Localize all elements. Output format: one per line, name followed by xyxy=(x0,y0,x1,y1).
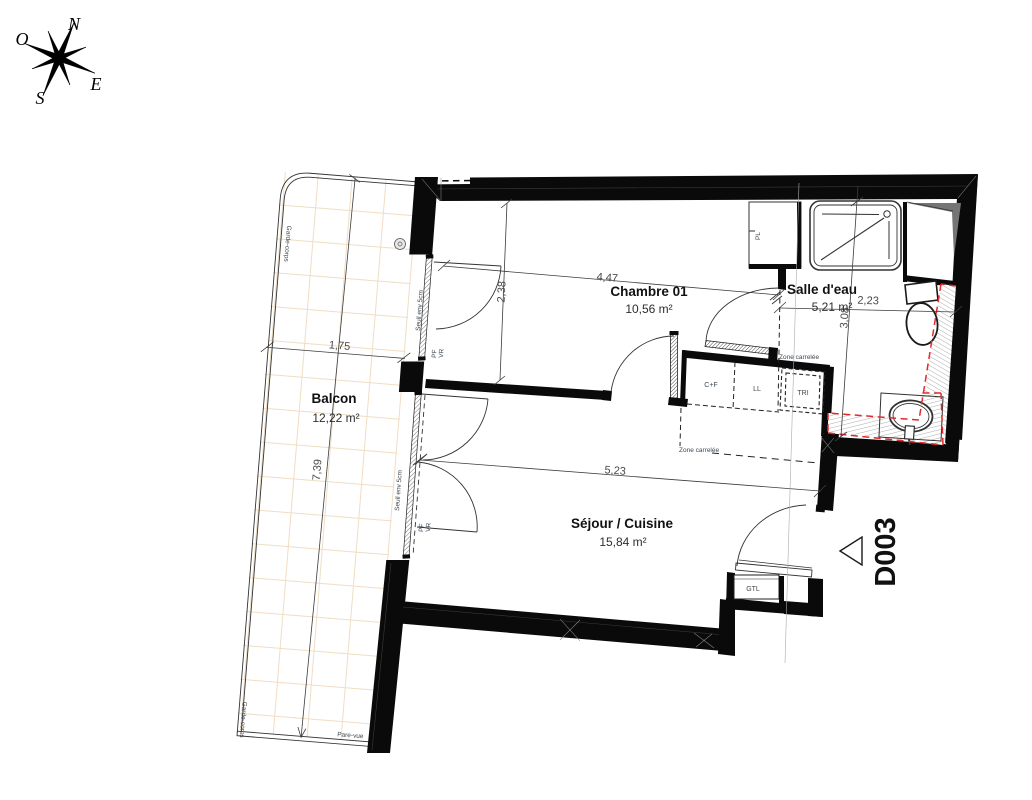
svg-text:Salle d'eau: Salle d'eau xyxy=(787,282,857,297)
svg-text:E: E xyxy=(90,74,102,94)
svg-text:15,84 m²: 15,84 m² xyxy=(599,535,646,549)
svg-text:2,38: 2,38 xyxy=(495,281,508,303)
svg-text:TRI: TRI xyxy=(797,390,808,397)
svg-text:2,23: 2,23 xyxy=(857,295,879,308)
svg-text:Zone carrelée: Zone carrelée xyxy=(779,354,819,361)
svg-text:PL: PL xyxy=(755,232,762,240)
svg-text:S: S xyxy=(36,88,45,108)
svg-text:C+F: C+F xyxy=(704,382,717,389)
svg-text:O: O xyxy=(16,29,29,49)
svg-text:Séjour / Cuisine: Séjour / Cuisine xyxy=(571,516,674,531)
svg-text:LL: LL xyxy=(753,386,761,393)
svg-text:Chambre 01: Chambre 01 xyxy=(610,284,688,299)
svg-text:VR: VR xyxy=(438,348,446,358)
svg-text:12,22 m²: 12,22 m² xyxy=(312,411,359,425)
svg-text:7,39: 7,39 xyxy=(311,459,325,481)
svg-text:N: N xyxy=(67,14,81,34)
svg-text:Balcon: Balcon xyxy=(311,391,356,406)
svg-text:GTL: GTL xyxy=(746,586,760,593)
svg-text:10,56 m²: 10,56 m² xyxy=(625,302,672,316)
svg-text:5,23: 5,23 xyxy=(604,464,626,477)
svg-text:D003: D003 xyxy=(870,517,902,586)
svg-text:5,21 m²: 5,21 m² xyxy=(812,300,853,314)
svg-text:VR: VR xyxy=(425,522,433,532)
svg-text:4,47: 4,47 xyxy=(596,271,618,285)
